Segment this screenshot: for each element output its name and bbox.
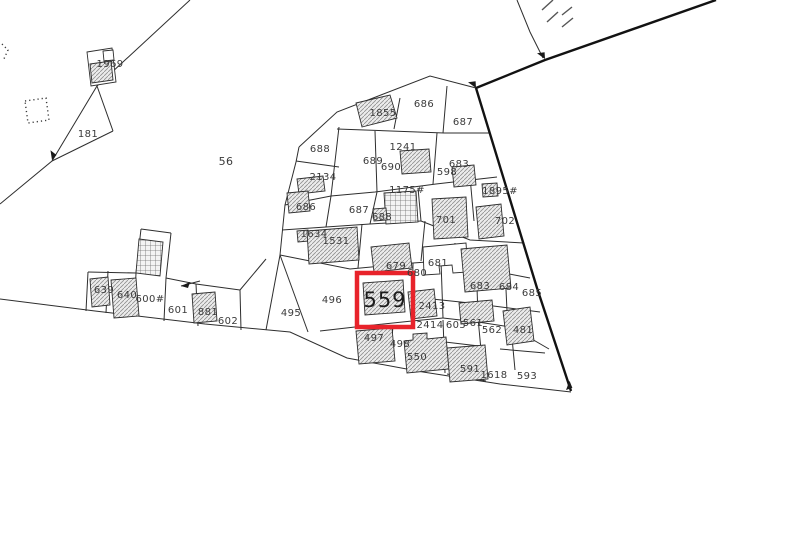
parcel-label-684: 684 [499, 282, 519, 293]
parcel-label-181: 181 [78, 129, 98, 140]
parcel-label-640: 640 [117, 290, 137, 301]
parcel-label-702: 702 [495, 216, 515, 227]
parcel-boundary [517, 0, 543, 58]
parcel-label-687: 687 [349, 205, 369, 216]
parcel-boundary [266, 255, 280, 330]
parcel-label-602: 602 [218, 316, 238, 327]
parcel-label-550: 550 [407, 352, 427, 363]
parcel-label-685: 685 [522, 288, 542, 299]
dashed-mark [562, 7, 572, 15]
parcel-label-881: 881 [198, 307, 218, 318]
dotted-outline [25, 98, 49, 123]
parcel-label-598: 598 [437, 167, 457, 178]
parcel-boundary [86, 272, 88, 311]
cadastral-map: 559 196918156185568668768868969012416835… [0, 0, 800, 533]
parcel-boundary [443, 86, 447, 133]
parcel-boundary [166, 278, 240, 290]
parcel-boundary [326, 196, 331, 227]
parcel-label-561: 561 [463, 318, 483, 329]
parcel-boundary [97, 86, 113, 131]
parcel-boundary [240, 259, 266, 290]
parcel-label-498: 498 [390, 339, 410, 350]
parcel-boundary [296, 161, 339, 167]
direction-arrow-head-icon [181, 282, 190, 288]
parcel-label-690: 690 [381, 162, 401, 173]
parcel-label-683: 683 [470, 281, 490, 292]
parcel-label-1241: 1241 [389, 142, 416, 153]
parcel-label-701: 701 [436, 215, 456, 226]
parcel-boundary [331, 127, 339, 196]
parcel-label-679: 679 [386, 261, 406, 272]
parcel-label-496: 496 [322, 295, 342, 306]
parcel-label-1175#: 1175# [389, 185, 425, 196]
dashed-path-marks [542, 0, 573, 27]
parcel-label-56: 56 [219, 155, 234, 168]
parcel-label-1618: 1618 [480, 370, 507, 381]
dashed-mark [542, 0, 553, 10]
buildings-layer [87, 48, 534, 382]
parcel-boundary [280, 255, 308, 332]
parcel-label-681: 681 [428, 258, 448, 269]
parcel-label-495: 495 [281, 308, 301, 319]
parcel-label-639: 639 [94, 285, 114, 296]
parcel-label-1855: 1855 [369, 108, 396, 119]
parcel-boundary [88, 272, 136, 273]
parcel-label-1531: 1531 [322, 236, 349, 247]
parcel-boundary [240, 290, 241, 330]
parcel-label-688: 688 [310, 144, 330, 155]
grid-building [136, 239, 163, 276]
dotted-outline [2, 44, 8, 61]
parcel-boundary [337, 129, 489, 133]
parcel-label-593: 593 [517, 371, 537, 382]
dashed-mark [547, 12, 558, 22]
cadastral-map-canvas: 559 196918156185568668768868969012416835… [0, 0, 800, 533]
parcel-label-2134: 2134 [309, 172, 336, 183]
parcel-boundary [500, 349, 545, 353]
parcel-label-601: 601 [168, 305, 188, 316]
parcel-label-686: 686 [414, 99, 434, 110]
parcel-label-2414: 2414 [416, 320, 443, 331]
parcel-boundary [0, 0, 190, 204]
parcel-boundary [166, 233, 171, 278]
parcel-label-688: 688 [372, 212, 392, 223]
parcel-label-481: 481 [513, 325, 533, 336]
road-boundary [476, 0, 716, 88]
parcel-label-1969: 1969 [96, 59, 123, 70]
parcel-label-680: 680 [407, 268, 427, 279]
dotted-parcel-outlines [2, 44, 49, 123]
parcel-label-600#: 600# [135, 294, 164, 305]
dashed-mark [562, 18, 573, 27]
parcel-label-497: 497 [364, 333, 384, 344]
parcel-label-562: 562 [482, 325, 502, 336]
parcel-boundary [445, 342, 479, 346]
parcel-label-687: 687 [453, 117, 473, 128]
parcel-labels-layer: 1969181561855686687688689690124168359821… [78, 59, 542, 382]
road-boundary [476, 88, 571, 391]
parcel-label-1895#: 1895# [482, 186, 518, 197]
highlighted-parcel-number: 559 [363, 288, 406, 312]
parcel-boundary [141, 229, 171, 233]
parcel-label-686: 686 [296, 202, 316, 213]
parcel-label-2413: 2413 [418, 301, 445, 312]
parcel-label-591: 591 [460, 364, 480, 375]
